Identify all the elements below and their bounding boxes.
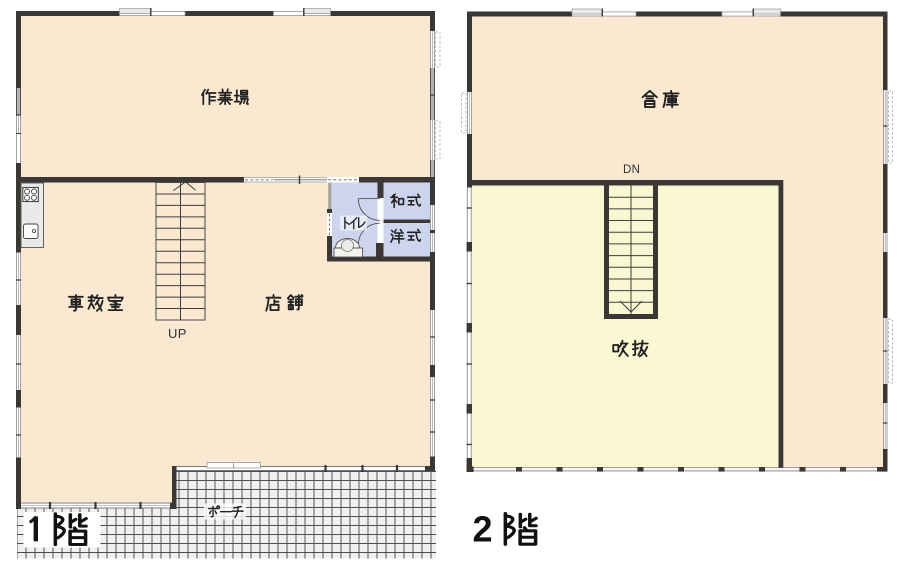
svg-text:UP: UP <box>168 326 187 341</box>
svg-text:DN: DN <box>623 164 640 176</box>
svg-text:2: 2 <box>473 509 493 550</box>
